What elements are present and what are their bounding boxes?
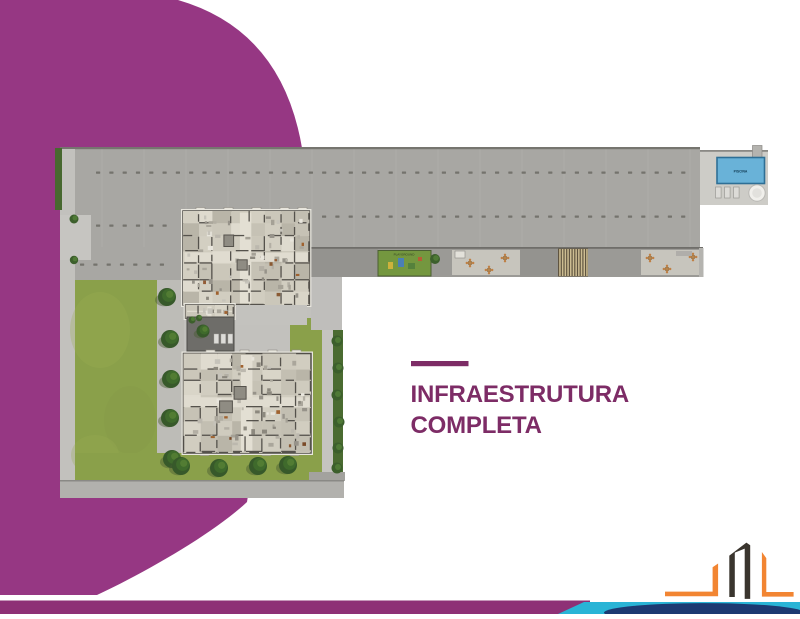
svg-text:PISCINA: PISCINA — [734, 170, 748, 174]
svg-text:PLAYGROUND: PLAYGROUND — [394, 253, 416, 257]
